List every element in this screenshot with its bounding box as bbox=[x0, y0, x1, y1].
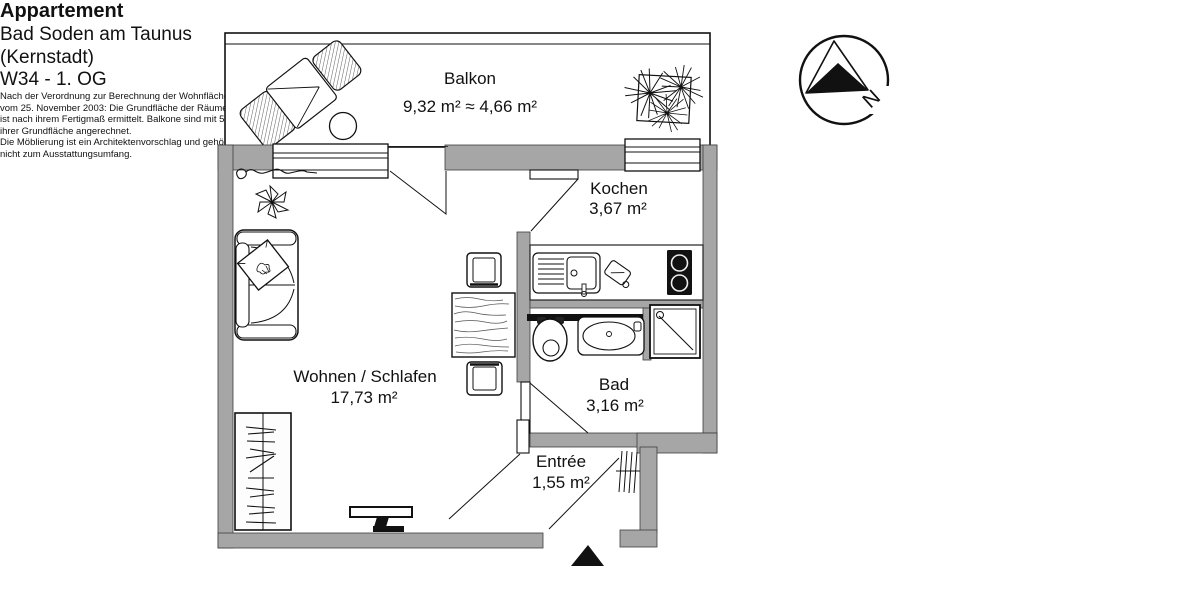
floorplan-page: Balkon 9,32 m² ≈ 4,66 m² bbox=[0, 0, 1200, 600]
entry-label: Entrée bbox=[536, 452, 586, 471]
floor-plan-svg: Balkon 9,32 m² ≈ 4,66 m² bbox=[0, 0, 1200, 600]
balcony-label: Balkon bbox=[444, 69, 496, 88]
chair-icon bbox=[467, 253, 501, 287]
dining-table-icon bbox=[452, 293, 515, 357]
kitchen-room: Kochen 3,67 m² bbox=[530, 179, 703, 300]
bath-door-swing-icon bbox=[521, 382, 588, 433]
entry-room: Entrée 1,55 m² bbox=[532, 452, 590, 492]
kitchen-label: Kochen bbox=[590, 179, 648, 198]
living-room: Wohnen / Schlafen 17,73 m² bbox=[235, 169, 515, 532]
bath-area: 3,16 m² bbox=[586, 396, 644, 415]
bath-room: Bad 3,16 m² bbox=[527, 305, 700, 415]
wardrobe-icon bbox=[235, 413, 291, 530]
side-table-icon bbox=[330, 113, 357, 140]
living-area: 17,73 m² bbox=[330, 388, 397, 407]
washbasin-icon bbox=[578, 317, 644, 355]
kitchen-area: 3,67 m² bbox=[589, 199, 647, 218]
chair-icon bbox=[467, 362, 502, 395]
balcony-room: Balkon 9,32 m² ≈ 4,66 m² bbox=[225, 33, 713, 152]
north-arrow-icon: N bbox=[800, 36, 889, 124]
plant-icon bbox=[256, 186, 288, 218]
tv-board-icon bbox=[350, 507, 412, 532]
living-door-swing-icon bbox=[449, 420, 529, 519]
kitchen-door-swing-icon bbox=[530, 170, 578, 231]
cooktop-icon bbox=[667, 250, 692, 295]
entrance-marker-icon bbox=[571, 545, 604, 566]
living-label: Wohnen / Schlafen bbox=[293, 367, 436, 386]
bath-label: Bad bbox=[599, 375, 629, 394]
balcony-area: 9,32 m² ≈ 4,66 m² bbox=[403, 97, 537, 116]
window-kitchen-icon bbox=[625, 139, 700, 171]
toilet-icon bbox=[533, 317, 567, 361]
shower-icon bbox=[650, 305, 700, 358]
sink-icon bbox=[533, 253, 600, 297]
balcony-door-swing-icon bbox=[388, 147, 448, 215]
entry-area: 1,55 m² bbox=[532, 473, 590, 492]
